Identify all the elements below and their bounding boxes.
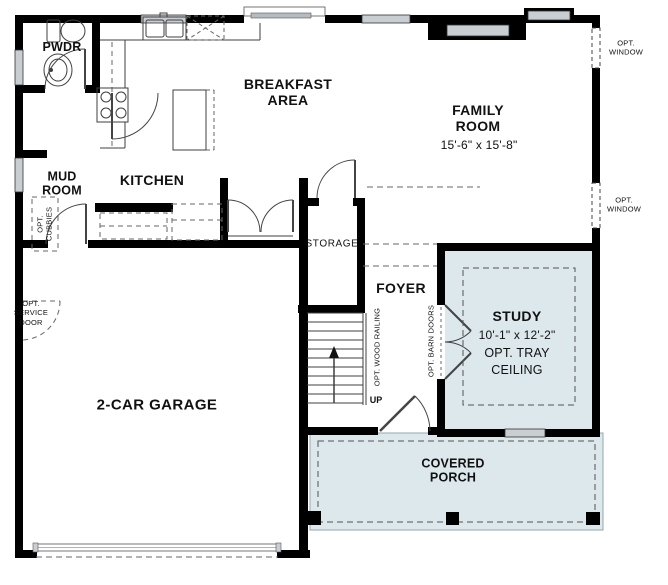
island <box>173 90 206 150</box>
opt-wood-railing-label: OPT. WOOD RAILING <box>372 308 381 386</box>
porch-post <box>586 512 600 525</box>
window <box>15 158 23 192</box>
mud-room-label: MUD ROOM <box>42 170 82 199</box>
window <box>362 15 410 23</box>
window <box>447 25 509 36</box>
up-label: UP <box>370 395 383 405</box>
closet-door-arc <box>228 200 260 232</box>
opt-service-door-label: OPT. SERVICE DOOR <box>14 299 48 327</box>
floor-plan-drawing <box>0 0 668 585</box>
study-note: OPT. TRAY CEILING <box>484 345 549 379</box>
counter-line <box>100 23 260 148</box>
opt-window-lower-label: OPT. WINDOW <box>607 196 641 215</box>
burner <box>101 108 111 118</box>
garage-label: 2-CAR GARAGE <box>97 396 218 413</box>
porch-post <box>446 512 459 525</box>
family-room-dims: 15'-6" x 15'-8" <box>441 139 518 153</box>
burner <box>116 108 126 118</box>
opt-window-opening <box>592 28 600 68</box>
toilet-bowl <box>61 20 85 42</box>
kitchen-fixtures <box>97 13 260 150</box>
garage-door <box>33 543 281 557</box>
island-dashed <box>206 90 214 150</box>
porch-label: COVERED PORCH <box>421 457 484 486</box>
closet-door-arc <box>261 200 293 232</box>
sliding-door <box>244 7 325 18</box>
burner <box>116 92 126 102</box>
front-door-arc <box>415 396 430 431</box>
breakfast-label: BREAKFAST AREA <box>244 76 332 108</box>
stairs <box>307 313 366 405</box>
opt-window-upper-label: OPT. WINDOW <box>609 39 643 58</box>
family-room-label: FAMILY ROOM <box>452 102 504 134</box>
room-fills <box>310 251 603 530</box>
foyer-label: FOYER <box>376 280 426 296</box>
hall-door-arc <box>112 93 158 139</box>
front-door-leaf <box>380 396 415 431</box>
stair-railing <box>363 313 366 405</box>
study-dims: 10'-1" x 12'-2" <box>479 329 556 343</box>
study-label: STUDY <box>493 308 542 324</box>
opt-cabinet <box>172 204 222 240</box>
porch-post <box>307 511 321 525</box>
opt-barn-doors-label: OPT. BARN DOORS <box>426 305 435 377</box>
storage-label: STORAGE <box>306 238 359 250</box>
burner <box>101 92 111 102</box>
floor-plan: PWDR BREAKFAST AREA FAMILY ROOM 15'-6" x… <box>0 0 668 585</box>
kitchen-label: KITCHEN <box>120 172 184 188</box>
storage-door-arc <box>317 160 355 198</box>
up-arrow-head <box>329 346 339 358</box>
window <box>15 50 23 85</box>
opt-cubbies-label: OPT. CUBBIES <box>36 207 55 241</box>
pwdr-label: PWDR <box>43 40 82 54</box>
window <box>528 11 570 20</box>
window <box>505 429 545 437</box>
opt-window-opening <box>592 183 600 228</box>
toilet-tank <box>47 20 60 42</box>
